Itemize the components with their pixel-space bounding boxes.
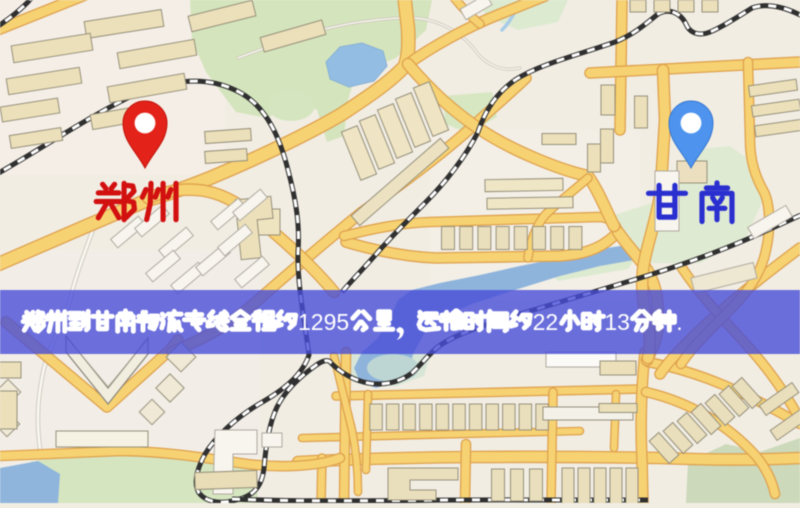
svg-text:.: .	[676, 309, 682, 335]
svg-text:22: 22	[533, 309, 559, 335]
svg-text:13: 13	[604, 309, 630, 335]
svg-text:1295: 1295	[298, 309, 349, 335]
